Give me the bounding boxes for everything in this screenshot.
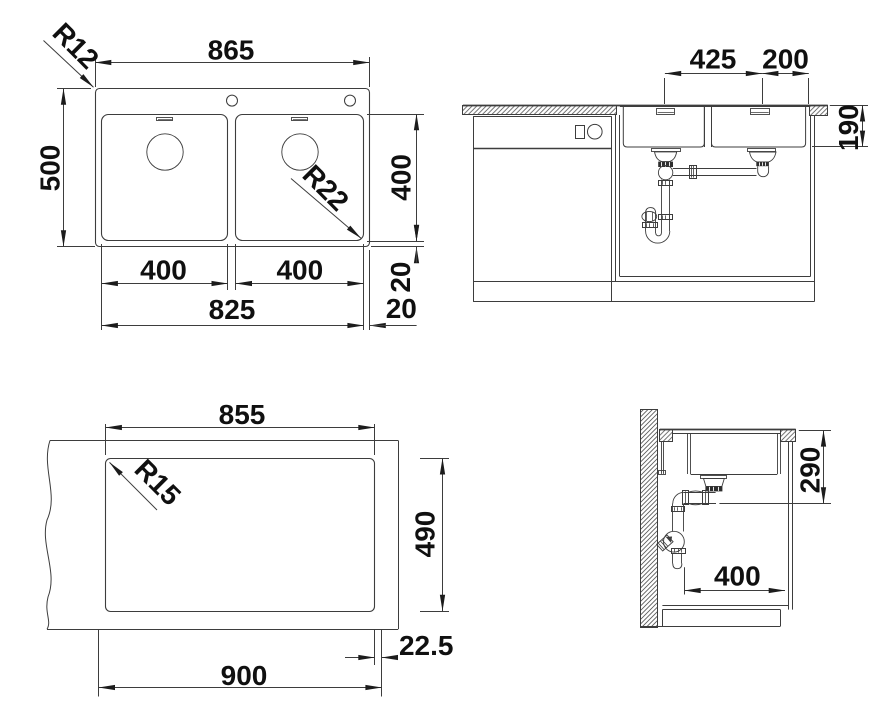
svg-text:190: 190 [833,104,864,151]
svg-text:500: 500 [35,145,66,192]
svg-text:200: 200 [762,44,809,75]
svg-text:400: 400 [140,255,187,286]
svg-text:400: 400 [714,560,761,591]
svg-text:290: 290 [794,447,825,494]
svg-text:22.5: 22.5 [399,630,454,661]
svg-text:825: 825 [209,294,256,325]
svg-text:855: 855 [219,399,266,430]
svg-text:490: 490 [410,511,441,558]
svg-text:20: 20 [386,293,417,324]
svg-text:425: 425 [690,44,737,75]
svg-text:400: 400 [276,255,323,286]
svg-text:900: 900 [221,660,268,691]
svg-text:865: 865 [208,35,255,66]
svg-text:400: 400 [385,154,416,201]
svg-text:20: 20 [385,262,416,293]
